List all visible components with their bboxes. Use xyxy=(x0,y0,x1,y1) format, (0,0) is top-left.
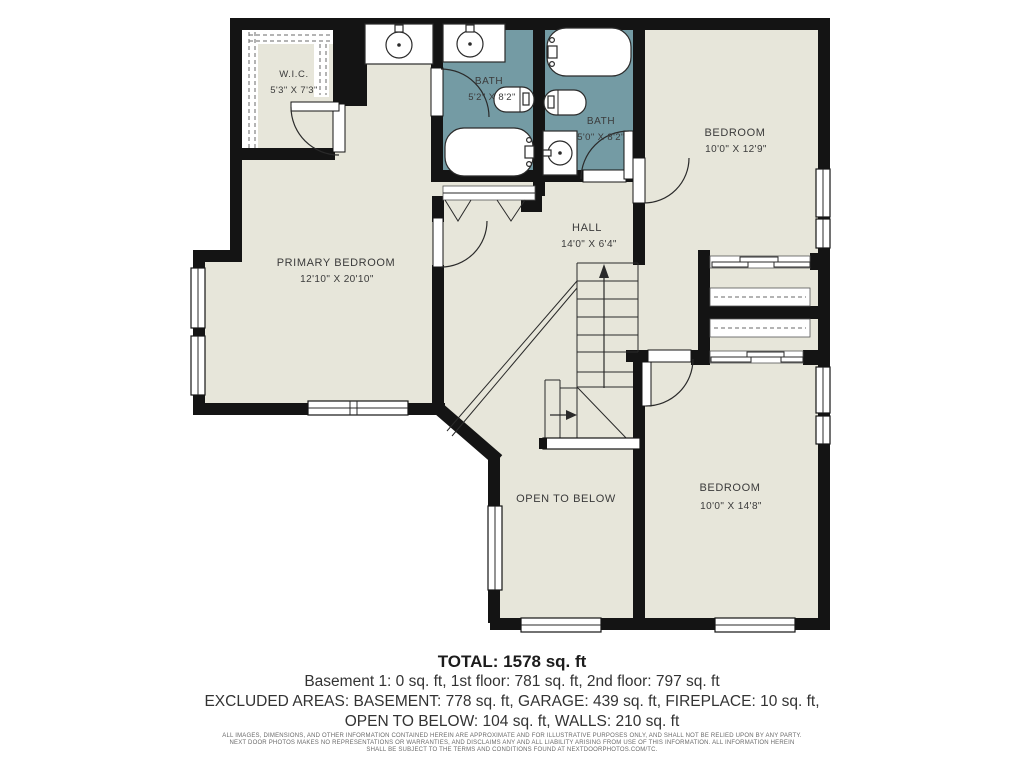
bath1-sink-symbol xyxy=(443,24,505,62)
room-label-primary: PRIMARY BEDROOM xyxy=(277,257,396,269)
room-label-hall: HALL xyxy=(572,222,602,234)
window xyxy=(816,219,830,248)
disclaimer: ALL IMAGES, DIMENSIONS, AND OTHER INFORM… xyxy=(0,733,1024,754)
room-dims-bath1: 5'2" X 8'2" xyxy=(468,92,516,103)
wall-wic-bottom xyxy=(230,148,335,160)
floor-plan-page: W.I.C. 5'3" X 7'3" BATH 5'2" X 8'2" BATH… xyxy=(0,0,1024,768)
area-summary: TOTAL: 1578 sq. ft Basement 1: 0 sq. ft,… xyxy=(0,652,1024,732)
room-label-open-to-below: OPEN TO BELOW xyxy=(516,493,616,505)
total-area-text: TOTAL: 1578 sq. ft xyxy=(0,652,1024,672)
room-label-bedroom1: BEDROOM xyxy=(704,127,765,139)
window xyxy=(191,268,205,328)
sliding-door-panel xyxy=(747,352,784,357)
disclaimer-line: NEXT DOOR PHOTOS MAKES NO REPRESENTATION… xyxy=(0,740,1024,747)
wall-bedroom1-west-a xyxy=(633,18,645,158)
wall-bedroom1-west-b xyxy=(633,203,645,265)
wic-shelf-strip xyxy=(242,30,258,152)
window xyxy=(816,169,830,217)
bath2-vanity-sink-symbol xyxy=(543,131,577,175)
wall-wic-right-block xyxy=(333,18,367,106)
vanity-sink-symbol xyxy=(365,24,433,64)
sliding-door-panel xyxy=(740,257,778,262)
window xyxy=(308,401,408,415)
stair-bottom-rail xyxy=(543,438,640,449)
bath2-bathtub-symbol xyxy=(547,28,631,76)
excluded-areas-text-2: OPEN TO BELOW: 104 sq. ft, WALLS: 210 sq… xyxy=(0,712,1024,732)
bath2-toilet-symbol xyxy=(544,90,586,115)
window xyxy=(521,618,601,632)
room-label-wic: W.I.C. xyxy=(279,69,308,80)
disclaimer-line: ALL IMAGES, DIMENSIONS, AND OTHER INFORM… xyxy=(0,733,1024,740)
disclaimer-line: SHALL BE SUBJECT TO THE TERMS AND CONDIT… xyxy=(0,747,1024,754)
wall-wic-left xyxy=(230,18,242,258)
wall-primary-east xyxy=(432,265,444,415)
wall-closet-topright-stub xyxy=(810,253,823,270)
window xyxy=(488,506,502,590)
floor-areas-text: Basement 1: 0 sq. ft, 1st floor: 781 sq.… xyxy=(0,672,1024,692)
wall-bath1-west xyxy=(431,116,443,176)
wall-closet-mid xyxy=(698,306,823,319)
window xyxy=(816,367,830,413)
window xyxy=(191,336,205,395)
room-label-bath2: BATH xyxy=(587,116,615,127)
room-dims-hall: 14'0" X 6'4" xyxy=(561,239,617,250)
wic-shelf-strip xyxy=(242,30,333,44)
sliding-door-panel xyxy=(774,262,810,267)
window xyxy=(816,416,830,444)
wall-closet-bottomright-stub xyxy=(803,350,823,365)
window xyxy=(715,618,795,632)
wall-right xyxy=(818,18,830,630)
room-dims-bedroom1: 10'0" X 12'9" xyxy=(705,144,767,155)
room-dims-wic: 5'3" X 7'3" xyxy=(270,85,318,96)
wall-top xyxy=(230,18,830,30)
sliding-door-panel xyxy=(712,262,748,267)
room-dims-bedroom2: 10'0" X 14'8" xyxy=(700,501,762,512)
room-label-bath1: BATH xyxy=(475,76,503,87)
bath1-bathtub-symbol xyxy=(445,128,534,176)
excluded-areas-text-1: EXCLUDED AREAS: BASEMENT: 778 sq. ft, GA… xyxy=(0,692,1024,712)
sliding-door-panel xyxy=(711,357,751,362)
room-dims-bath2: 5'0" X 8'2" xyxy=(577,132,625,143)
sliding-door-panel xyxy=(781,357,803,362)
room-dims-primary: 12'10" X 20'10" xyxy=(300,274,374,285)
room-label-bedroom2: BEDROOM xyxy=(699,482,760,494)
